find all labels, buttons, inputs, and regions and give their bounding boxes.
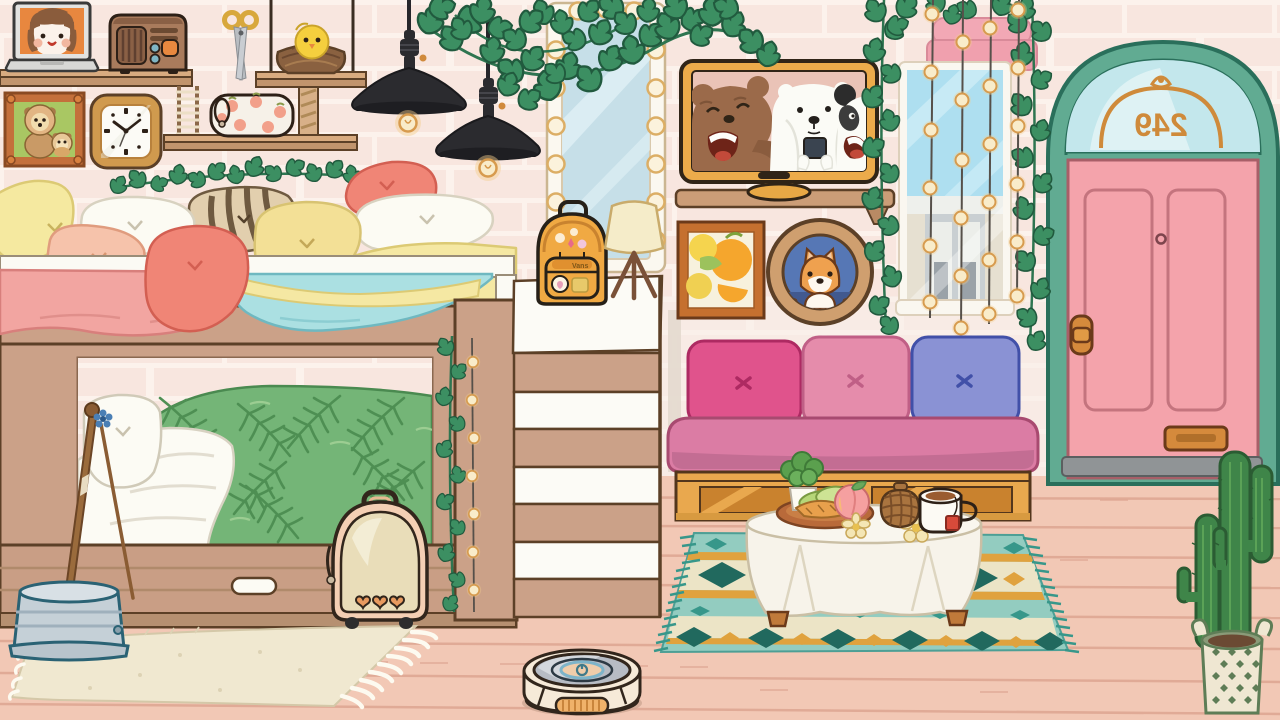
svg-text:249: 249 [1134,107,1187,143]
svg-text:Vans: Vans [572,263,588,270]
